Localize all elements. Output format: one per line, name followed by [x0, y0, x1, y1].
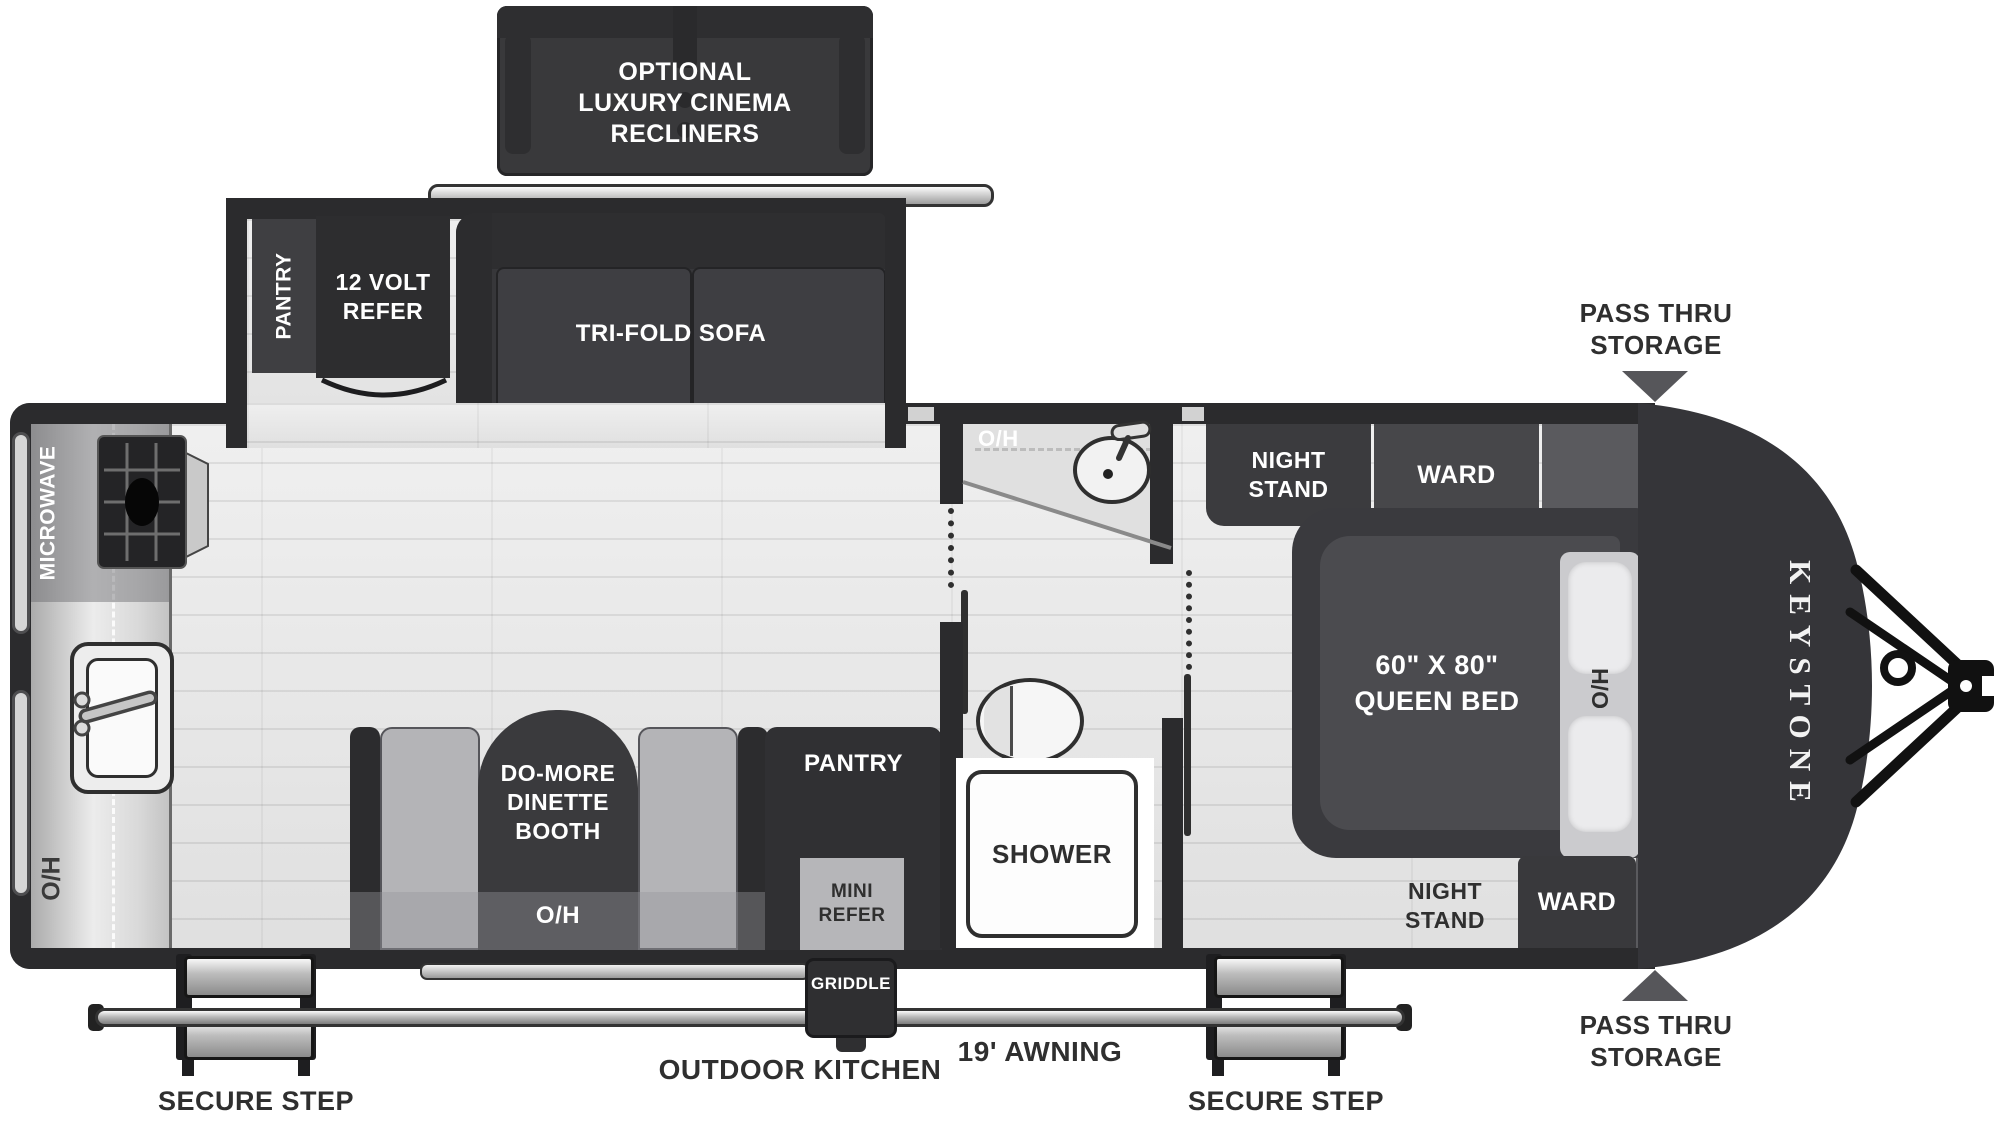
refer-door-arc — [322, 380, 446, 395]
awning-label: 19' AWNING — [920, 1034, 1160, 1070]
griddle: GRIDDLE — [805, 958, 897, 1038]
pass-thru-arrow-up — [1622, 970, 1688, 1001]
kitchen-faucet-icon — [75, 693, 150, 735]
awning-rail — [95, 1008, 1405, 1027]
hitch-coupler — [1948, 660, 1994, 712]
range-cooktop — [98, 436, 208, 568]
griddle-label: GRIDDLE — [808, 967, 894, 1001]
griddle-foot — [836, 1038, 866, 1052]
bath-sink-icon — [1075, 421, 1151, 502]
step-tread — [1214, 956, 1344, 998]
step-tread — [184, 956, 314, 998]
outdoor-kitchen-label: OUTDOOR KITCHEN — [650, 1052, 950, 1088]
step-foot — [1212, 1060, 1224, 1076]
keystone-logo: KEYSTONE — [1780, 536, 1820, 836]
step-foot — [1328, 1060, 1340, 1076]
step-foot — [182, 1060, 194, 1076]
nose-cap — [1638, 403, 1872, 969]
outdoor-kitchen-door — [420, 963, 810, 980]
rv-floorplan: OPTIONAL LUXURY CINEMA RECLINERS PANTRY … — [0, 0, 2000, 1129]
secure-step-right-label: SECURE STEP — [1186, 1084, 1386, 1118]
step-foot — [298, 1060, 310, 1076]
secure-step-left-label: SECURE STEP — [156, 1084, 356, 1118]
pass-thru-arrow-down — [1622, 371, 1688, 402]
hitch-jack — [1884, 654, 1912, 682]
pass-thru-storage-label-top: PASS THRU STORAGE — [1558, 296, 1754, 362]
pass-thru-storage-label-bottom: PASS THRU STORAGE — [1558, 1008, 1754, 1074]
